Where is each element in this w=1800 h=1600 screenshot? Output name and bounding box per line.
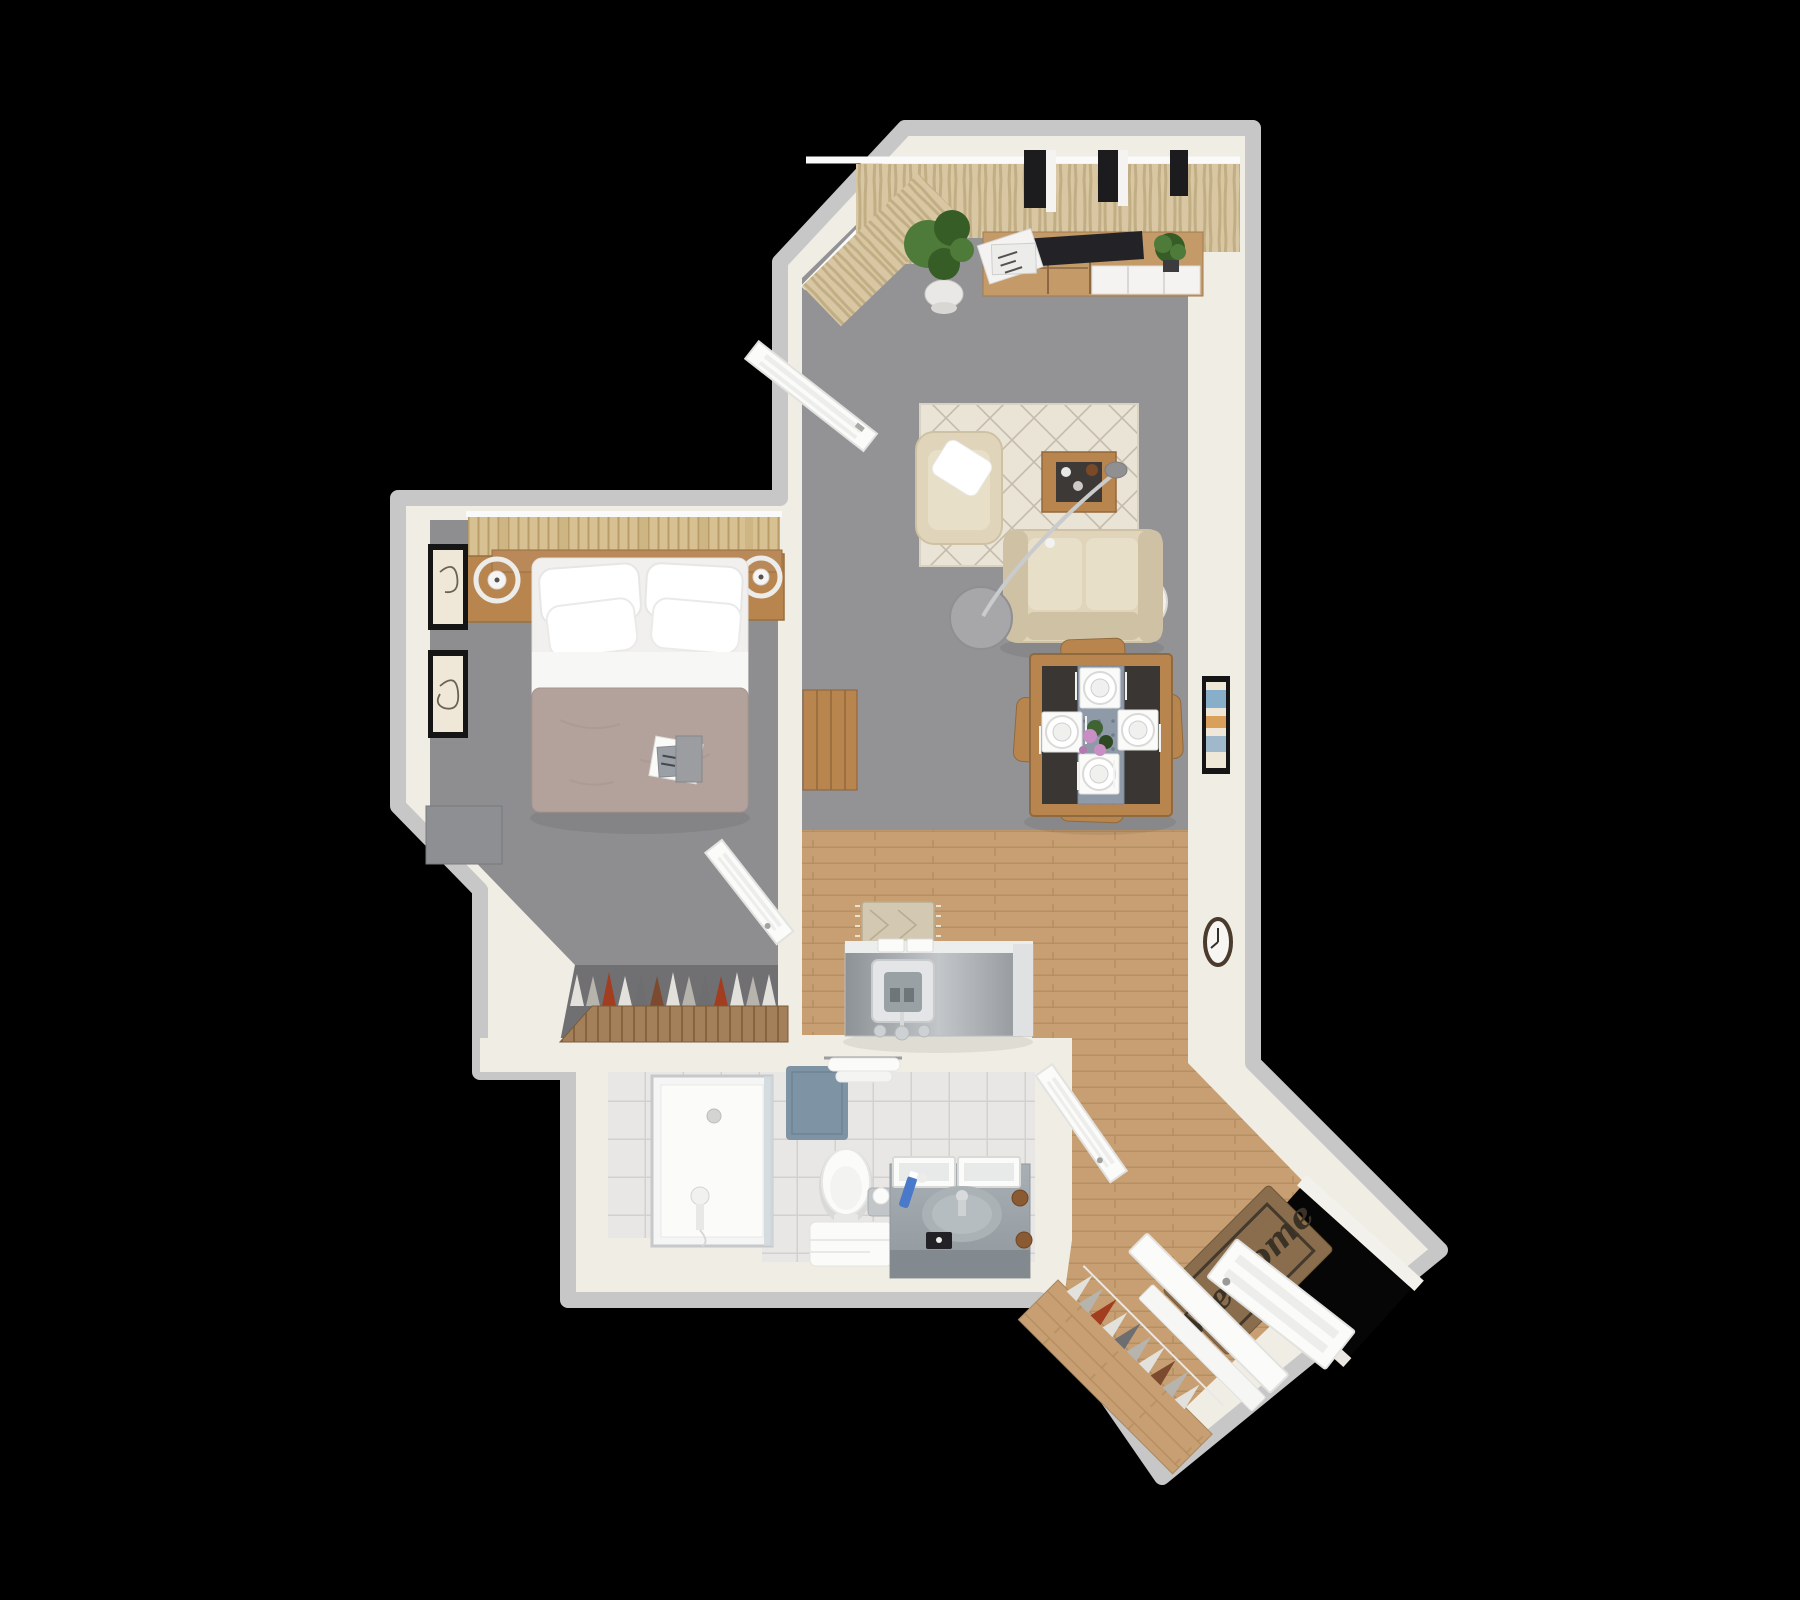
rolled-towel (828, 1058, 900, 1071)
toilet-seat (830, 1166, 862, 1210)
soap-pump (1016, 1232, 1032, 1248)
soap-pump (1012, 1190, 1028, 1206)
faucet-knob (895, 1026, 909, 1040)
place-setting (1042, 712, 1082, 752)
pillow (545, 597, 639, 659)
console-drawers (1092, 266, 1200, 294)
toilet (819, 1148, 873, 1224)
bed (532, 558, 748, 812)
duvet (532, 688, 748, 812)
sheet-fold (532, 652, 748, 692)
window-gap (1024, 150, 1046, 208)
cup (1073, 481, 1083, 491)
counter-end-panel (1013, 944, 1033, 1036)
cosmetic-box-dot (936, 1237, 942, 1243)
console-plant-leaf (1170, 244, 1186, 260)
sofa-backrest (1026, 612, 1140, 640)
sink-detail (890, 988, 900, 1002)
curtain-fold (1200, 164, 1240, 252)
paper-roll (873, 1188, 889, 1204)
hand-shower (691, 1187, 709, 1205)
wall-clock (1205, 919, 1231, 965)
walk-in-closet (560, 972, 788, 1042)
cup (1061, 467, 1071, 477)
window-mullion (1046, 150, 1056, 212)
sofa-armrest (1138, 530, 1162, 642)
candle (1086, 464, 1098, 476)
towel-bench (810, 1222, 892, 1266)
sink-basin (884, 972, 922, 1012)
towel-rack (824, 1058, 902, 1082)
tv-console (977, 229, 1203, 296)
vanity (890, 1157, 1032, 1278)
radiator-panel (676, 736, 702, 782)
place-setting (1080, 668, 1120, 708)
cutting-board (878, 939, 904, 952)
shower-tray (661, 1085, 763, 1237)
faucet-knob (874, 1025, 886, 1037)
shower-glass (764, 1076, 773, 1246)
console-plant-leaf (1154, 235, 1172, 253)
kitchen-counter (845, 939, 1033, 1040)
folded-towels (810, 1222, 892, 1266)
wardrobe-unit (560, 1006, 788, 1042)
window-gap (1098, 150, 1118, 202)
place-setting (1118, 710, 1158, 750)
wall-art-living (1202, 676, 1230, 774)
sofa (1004, 530, 1162, 642)
counter-lip (845, 941, 1033, 953)
armchair (916, 432, 1002, 544)
cutting-board (907, 939, 933, 952)
lamp-joint (1045, 538, 1055, 548)
faucet-knob (918, 1025, 930, 1037)
hand-shower-handle (696, 1204, 704, 1230)
vanity-front (890, 1250, 1030, 1278)
wall-table (803, 690, 857, 790)
vanity-faucet-spout (958, 1200, 966, 1216)
lamp-base (950, 587, 1012, 649)
mirror-glass (964, 1163, 1014, 1181)
dining-set (1013, 638, 1184, 823)
console-plant-pot (1163, 260, 1179, 272)
lamp-shade (1105, 462, 1127, 478)
floorplan-svg: Welcome (0, 0, 1800, 1600)
rolled-towel (836, 1071, 892, 1082)
cup (917, 1173, 927, 1183)
dresser (426, 806, 502, 864)
window-gap (1170, 150, 1188, 196)
floorplan-scene: Welcome (0, 0, 1800, 1600)
shower-drain (707, 1109, 721, 1123)
pillow (650, 597, 742, 654)
shower (652, 1076, 773, 1246)
plant-pot-base (931, 302, 957, 314)
plant-foliage (950, 238, 974, 262)
window-mullion (1118, 150, 1128, 206)
sofa-cushion (1086, 538, 1138, 610)
sink-detail (904, 988, 914, 1002)
